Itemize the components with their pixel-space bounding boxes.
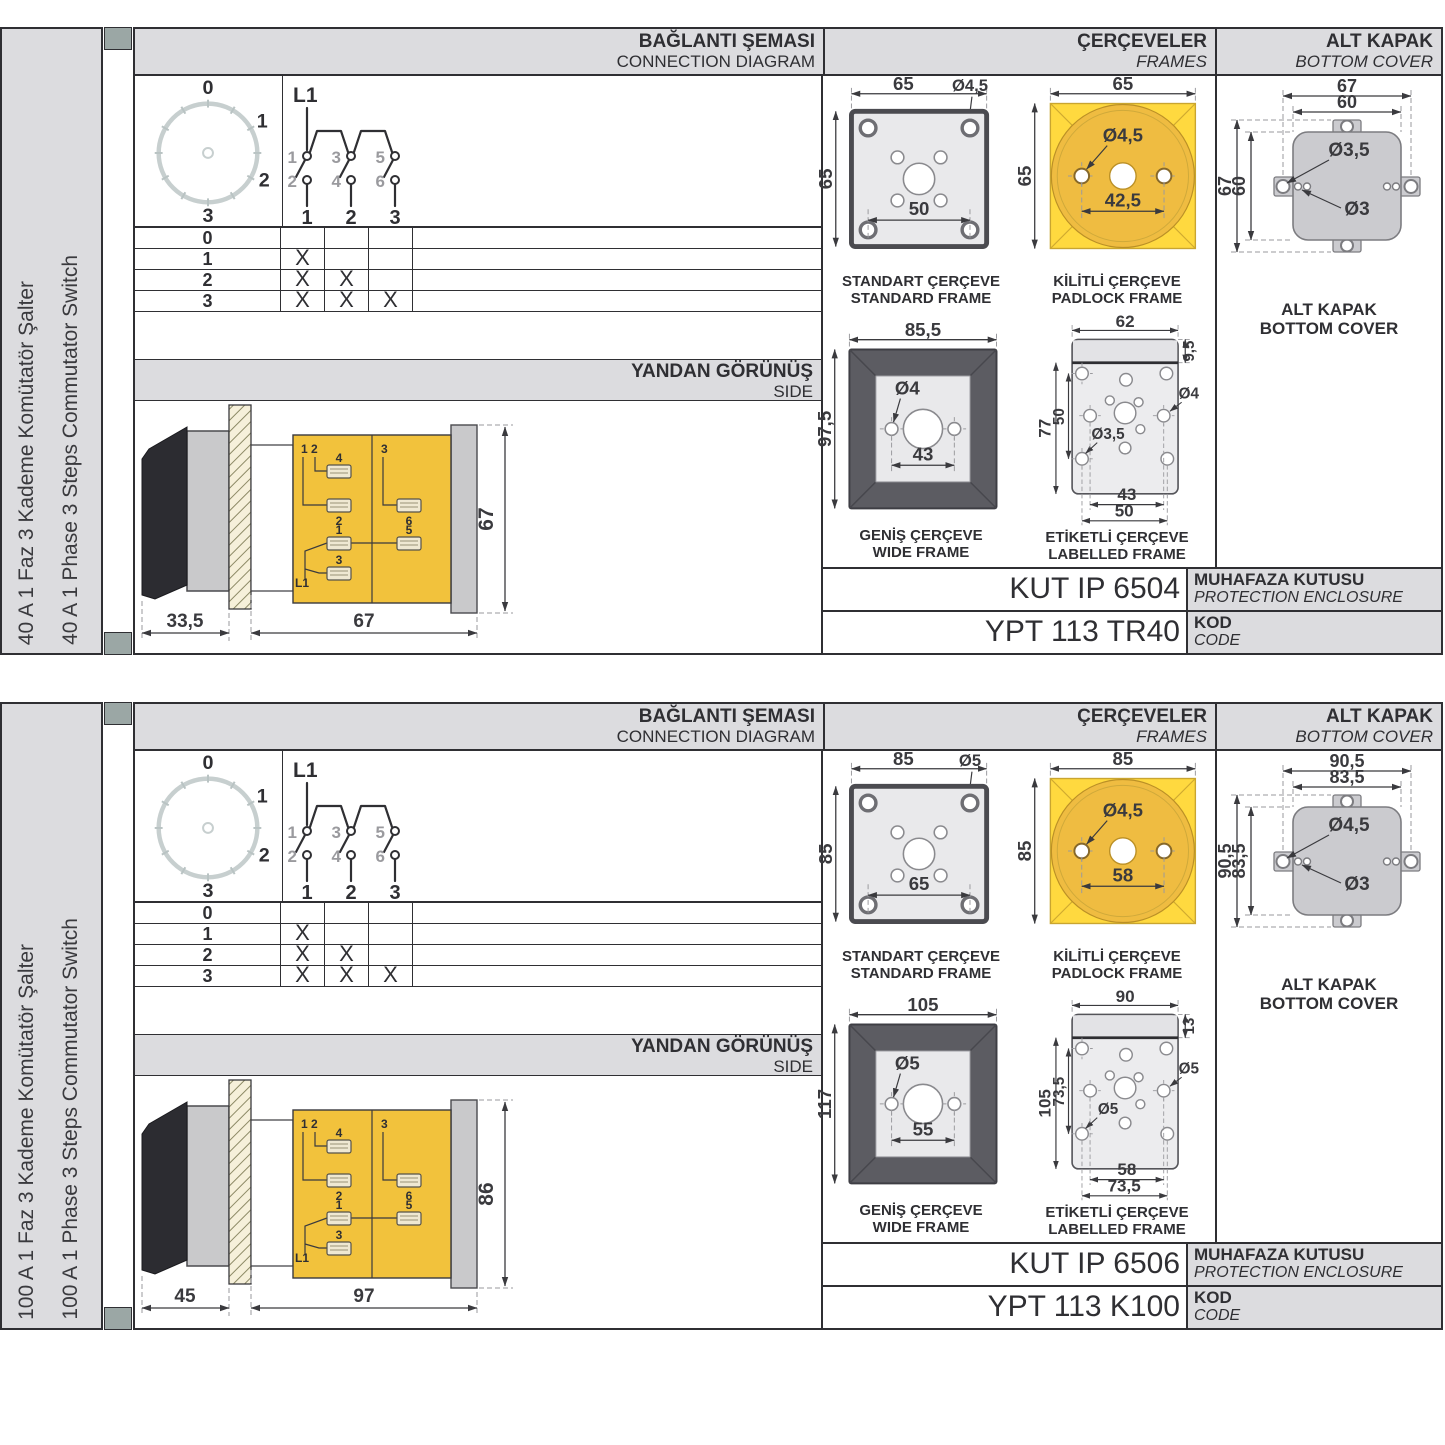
terminal-1-label: 1 <box>288 823 297 842</box>
panel-main-area: BAĞLANTI ŞEMASI CONNECTION DIAGRAM ÇERÇE… <box>133 702 1443 1330</box>
frames-and-cover: 65 Ø4,5 65 <box>823 76 1441 567</box>
dial-position-3: 3 <box>203 205 214 227</box>
product-title-english: 40 A 1 Phase 3 Steps Commutator Switch <box>60 255 81 645</box>
terminal-1-tag: 1 <box>336 523 343 537</box>
code-label-en: CODE <box>1194 1307 1441 1325</box>
dim-hole-diameter: Ø4,5 <box>1103 800 1143 821</box>
code-label: KOD CODE <box>1186 612 1441 653</box>
dim-handle-depth: 45 <box>174 1286 196 1307</box>
table-filler-cell <box>413 270 821 290</box>
header-frames-tr: ÇERÇEVELER <box>825 31 1207 52</box>
position-label-cell: 2 <box>135 270 281 290</box>
padlock-frame-caption: KİLİTLİ ÇERÇEVE PADLOCK FRAME <box>1019 948 1215 982</box>
caption-tr: GENİŞ ÇERÇEVE <box>823 527 1019 544</box>
corner-terminals-12-label: 1 2 <box>301 442 318 456</box>
dim-body-height: 86 <box>475 1182 498 1205</box>
table-filler-cell <box>413 945 821 965</box>
table-filler-cell <box>413 966 821 986</box>
terminal-4-label: 4 <box>332 172 342 191</box>
product-code: YPT 113 K100 <box>823 1287 1186 1328</box>
labelled-frame-drawing: 90 13 105 73,5 <box>1029 991 1205 1203</box>
position-label-cell: 3 <box>135 966 281 986</box>
table-filler-cell <box>413 228 821 248</box>
phase-label: L1 <box>293 84 318 107</box>
product-code-row: YPT 113 K100 KOD CODE <box>823 1285 1441 1328</box>
terminal-2-label: 2 <box>288 847 297 866</box>
header-frames: ÇERÇEVELER FRAMES <box>823 704 1215 749</box>
padlock-frame-drawing: 85 85 <box>1019 755 1215 947</box>
dim-hole-b-diameter: Ø5 <box>1098 1101 1119 1118</box>
dial-position-1: 1 <box>257 110 268 132</box>
caption-en: STANDARD FRAME <box>823 290 1019 307</box>
enclosure-label: MUHAFAZA KUTUSU PROTECTION ENCLOSURE <box>1186 1244 1441 1285</box>
shaft-housing <box>251 1120 293 1266</box>
panel-content: 0 1 2 3 L1 <box>135 76 1441 653</box>
terminal-5-tag: 5 <box>406 1198 413 1212</box>
dim-frame-height: 85 <box>1014 841 1035 862</box>
enclosure-row: KUT IP 6506 MUHAFAZA KUTUSU PROTECTION E… <box>823 1242 1441 1285</box>
dim-label-band: 13 <box>1181 1018 1198 1035</box>
dial-position-0: 0 <box>203 77 214 99</box>
wide-frame-figure: 105 117 <box>823 999 1019 1236</box>
position-mark-cell <box>325 903 369 923</box>
switch-bezel <box>187 1106 229 1266</box>
caption-en: PADLOCK FRAME <box>1019 965 1215 982</box>
padlock-frame-caption: KİLİTLİ ÇERÇEVE PADLOCK FRAME <box>1019 273 1215 307</box>
dim-hole-diameter: Ø5 <box>959 751 981 770</box>
header-frames-en: FRAMES <box>825 727 1207 746</box>
labelled-frame-figure: 90 13 105 73,5 <box>1019 991 1215 1238</box>
position-mark-cell: X <box>325 966 369 986</box>
table-row: 0 <box>135 903 821 924</box>
pole-schematic-cell: L1 1 2 3 <box>283 751 823 901</box>
dim-cover-inner-width: 83,5 <box>1329 767 1364 787</box>
caption-en: LABELLED FRAME <box>1019 1221 1215 1238</box>
product-code: YPT 113 TR40 <box>823 612 1186 653</box>
header-frames-tr: ÇERÇEVELER <box>825 706 1207 727</box>
section-header-row: BAĞLANTI ŞEMASI CONNECTION DIAGRAM ÇERÇE… <box>135 704 1441 751</box>
dim-frame-height: 65 <box>1014 166 1035 187</box>
dim-frame-width: 65 <box>893 73 914 94</box>
caption-en: WIDE FRAME <box>823 544 1019 561</box>
panel-content: 0 1 2 3 L1 <box>135 751 1441 1328</box>
position-mark-cell <box>369 903 413 923</box>
position-mark-cell <box>369 249 413 269</box>
standard-frame-figure: 85 Ø5 85 <box>823 755 1019 982</box>
corner-terminal-3-label: 3 <box>381 442 388 456</box>
bottom-cover-caption: ALT KAPAK BOTTOM COVER <box>1217 300 1441 338</box>
padlock-frame-figure: 65 65 <box>1019 80 1215 307</box>
dim-hole-diameter: Ø4,5 <box>1103 125 1143 146</box>
dim-hole-diameter: Ø5 <box>895 1053 920 1074</box>
caption-tr: ALT KAPAK <box>1217 300 1441 319</box>
side-view-cell: 1 2 3 4 2 1 3 6 5 L1 33,5 <box>135 401 823 651</box>
accent-square-bottom <box>104 1307 132 1330</box>
section-header-row: BAĞLANTI ŞEMASI CONNECTION DIAGRAM ÇERÇE… <box>135 29 1441 76</box>
dim-frame-width: 85,5 <box>905 319 941 340</box>
dim-frame-height: 117 <box>814 1089 835 1119</box>
header-bottom-cover: ALT KAPAK BOTTOM COVER <box>1215 29 1441 74</box>
side-view-title-tr: YANDAN GÖRÜNÜŞ <box>135 361 813 382</box>
dim-cover-hole-a: Ø4,5 <box>1328 815 1370 836</box>
dim-frame-width: 85 <box>1113 748 1134 769</box>
dim-frame-height: 97,5 <box>814 411 835 447</box>
enclosure-row: KUT IP 6504 MUHAFAZA KUTUSU PROTECTION E… <box>823 567 1441 610</box>
dial-position-0: 0 <box>203 752 214 774</box>
product-title-sidebar: 100 A 1 Faz 3 Kademe Komütatör Şalter 10… <box>0 702 103 1330</box>
dim-frame-width: 85 <box>893 748 914 769</box>
position-mark-cell: X <box>369 966 413 986</box>
dim-hole-pitch: 42,5 <box>1105 189 1141 210</box>
connection-diagram-column: 0 1 2 3 L1 <box>135 751 823 1328</box>
table-filler-cell <box>413 924 821 944</box>
dial-position-3: 3 <box>203 880 214 902</box>
caption-en: WIDE FRAME <box>823 1219 1019 1236</box>
dim-cover-inner-height: 83,5 <box>1229 843 1249 878</box>
enclosure-label: MUHAFAZA KUTUSU PROTECTION ENCLOSURE <box>1186 569 1441 610</box>
switch-handle <box>142 1102 187 1274</box>
phase-tag: L1 <box>295 1251 309 1265</box>
caption-tr: KİLİTLİ ÇERÇEVE <box>1019 948 1215 965</box>
dim-cover-hole-b: Ø3 <box>1344 199 1369 220</box>
dim-vertical-pitch: 50 <box>1051 408 1068 425</box>
dim-hole-pitch: 58 <box>1113 864 1134 885</box>
position-label-cell: 1 <box>135 924 281 944</box>
side-view-band: YANDAN GÖRÜNÜŞ SIDE <box>135 1034 821 1076</box>
header-frames-en: FRAMES <box>825 52 1207 71</box>
enclosure-label-en: PROTECTION ENCLOSURE <box>1194 589 1441 607</box>
accent-square-bottom <box>104 632 132 655</box>
caption-en: LABELLED FRAME <box>1019 546 1215 563</box>
switch-bezel <box>187 431 229 591</box>
product-title-sidebar: 40 A 1 Faz 3 Kademe Komütatör Şalter 40 … <box>0 27 103 655</box>
table-row: 1 X <box>135 924 821 945</box>
labelled-frame-caption: ETİKETLİ ÇERÇEVE LABELLED FRAME <box>1019 1204 1215 1238</box>
switch-dial-cell: 0 1 2 3 <box>135 751 283 901</box>
product-title-english: 100 A 1 Phase 3 Steps Commutator Switch <box>60 918 81 1320</box>
position-mark-cell: X <box>325 291 369 311</box>
header-connection-diagram: BAĞLANTI ŞEMASI CONNECTION DIAGRAM <box>135 29 823 74</box>
pole-schematic-drawing: L1 1 2 3 <box>283 76 823 226</box>
enclosure-label-tr: MUHAFAZA KUTUSU <box>1194 570 1441 589</box>
code-label: KOD CODE <box>1186 1287 1441 1328</box>
terminal-6-label: 6 <box>376 172 385 191</box>
labelled-frame-figure: 62 9,5 77 50 <box>1019 316 1215 563</box>
contact-position-table: 0 1 X 2 X <box>135 226 821 312</box>
terminal-5-label: 5 <box>376 148 385 167</box>
bottom-cover-caption: ALT KAPAK BOTTOM COVER <box>1217 975 1441 1013</box>
wide-frame-caption: GENİŞ ÇERÇEVE WIDE FRAME <box>823 1202 1019 1236</box>
accent-square-top <box>104 27 132 50</box>
dim-frame-height: 85 <box>815 844 836 865</box>
header-cover-tr: ALT KAPAK <box>1217 706 1433 727</box>
dim-hole-diameter: Ø4 <box>895 378 920 399</box>
position-mark-cell: X <box>369 291 413 311</box>
position-mark-cell: X <box>281 291 325 311</box>
dim-hole-pitch: 55 <box>913 1118 934 1139</box>
frames-column: 65 Ø4,5 65 <box>823 76 1215 567</box>
table-row: 3 X X X <box>135 291 821 312</box>
header-cover-en: BOTTOM COVER <box>1217 52 1433 71</box>
dim-frame-width: 90 <box>1116 987 1135 1006</box>
caption-tr: STANDART ÇERÇEVE <box>823 273 1019 290</box>
mounting-panel-hatched <box>229 405 251 609</box>
dim-frame-width: 105 <box>907 994 938 1015</box>
position-mark-cell <box>325 228 369 248</box>
phase-tag: L1 <box>295 576 309 590</box>
panel-main-area: BAĞLANTI ŞEMASI CONNECTION DIAGRAM ÇERÇE… <box>133 27 1443 655</box>
caption-tr: ETİKETLİ ÇERÇEVE <box>1019 529 1215 546</box>
pole-schematic-cell: L1 1 2 3 <box>283 76 823 226</box>
terminal-3-tag: 3 <box>336 553 343 567</box>
switch-position-dial: 0 1 2 3 <box>135 76 283 226</box>
terminal-2-label: 2 <box>288 172 297 191</box>
enclosure-code: KUT IP 6506 <box>823 1244 1186 1285</box>
dim-body-height: 67 <box>475 507 498 530</box>
dim-cover-hole-a: Ø3,5 <box>1328 140 1370 161</box>
dial-position-1: 1 <box>257 785 268 807</box>
terminal-6-label: 6 <box>376 847 385 866</box>
dim-body-depth: 67 <box>353 611 374 632</box>
header-bottom-cover: ALT KAPAK BOTTOM COVER <box>1215 704 1441 749</box>
rear-plate <box>451 425 477 613</box>
table-row: 1 X <box>135 249 821 270</box>
shaft-housing <box>251 445 293 591</box>
right-region: 65 Ø4,5 65 <box>823 76 1441 653</box>
terminal-3-label: 3 <box>332 148 341 167</box>
accent-square-top <box>104 702 132 725</box>
bottom-cover-column: 67 60 67 60 <box>1215 76 1441 567</box>
dim-frame-width: 65 <box>1113 73 1134 94</box>
pole-schematic-drawing: L1 1 2 3 <box>283 751 823 901</box>
dim-hole-pitch: 43 <box>913 443 934 464</box>
side-view-drawing: 1 2 3 4 2 1 3 6 5 L1 45 <box>135 1076 823 1326</box>
frames-column: 85 Ø5 85 <box>823 751 1215 1242</box>
header-frames: ÇERÇEVELER FRAMES <box>823 29 1215 74</box>
position-label-cell: 3 <box>135 291 281 311</box>
standard-frame-drawing: 85 Ø5 85 <box>823 755 1019 947</box>
caption-tr: ALT KAPAK <box>1217 975 1441 994</box>
header-cover-en: BOTTOM COVER <box>1217 727 1433 746</box>
enclosure-label-tr: MUHAFAZA KUTUSU <box>1194 1245 1441 1264</box>
labelled-frame-drawing: 62 9,5 77 50 <box>1029 316 1205 528</box>
terminal-1-tag: 1 <box>336 1198 343 1212</box>
product-title-turkish: 100 A 1 Faz 3 Kademe Komütatör Şalter <box>16 944 37 1320</box>
code-label-tr: KOD <box>1194 613 1441 632</box>
dim-label-band: 9,5 <box>1181 340 1198 362</box>
dim-pitch-2: 50 <box>1115 501 1134 520</box>
table-filler-cell <box>413 903 821 923</box>
phase-label: L1 <box>293 759 318 782</box>
dim-cover-inner-height: 60 <box>1229 176 1249 196</box>
table-row: 3 X X X <box>135 966 821 987</box>
padlock-frame-figure: 85 85 <box>1019 755 1215 982</box>
rear-plate <box>451 1100 477 1288</box>
product-panel-p0: 40 A 1 Faz 3 Kademe Komütatör Şalter 40 … <box>0 27 1445 655</box>
dim-hole-pitch: 50 <box>909 198 930 219</box>
dial-position-2: 2 <box>259 170 270 192</box>
position-label-cell: 2 <box>135 945 281 965</box>
dim-hole-pitch: 65 <box>909 873 930 894</box>
standard-frame-caption: STANDART ÇERÇEVE STANDARD FRAME <box>823 948 1019 982</box>
header-connection-tr: BAĞLANTI ŞEMASI <box>135 31 815 52</box>
product-panel-p1: 100 A 1 Faz 3 Kademe Komütatör Şalter 10… <box>0 702 1445 1330</box>
table-filler-cell <box>413 291 821 311</box>
table-row: 0 <box>135 228 821 249</box>
terminal-4-label: 4 <box>332 847 342 866</box>
labelled-frame-caption: ETİKETLİ ÇERÇEVE LABELLED FRAME <box>1019 529 1215 563</box>
dim-hole-a-diameter: Ø4 <box>1179 386 1200 403</box>
side-view-title-en: SIDE <box>135 1057 813 1076</box>
caption-en: STANDARD FRAME <box>823 965 1019 982</box>
standard-frame-drawing: 65 Ø4,5 65 <box>823 80 1019 272</box>
dim-vertical-pitch: 73,5 <box>1051 1076 1068 1106</box>
dim-hole-diameter: Ø4,5 <box>952 76 988 95</box>
terminal-4-tag: 4 <box>336 451 343 465</box>
terminal-3-label: 3 <box>332 823 341 842</box>
wide-frame-caption: GENİŞ ÇERÇEVE WIDE FRAME <box>823 527 1019 561</box>
switch-dial-cell: 0 1 2 3 <box>135 76 283 226</box>
dim-frame-height: 65 <box>815 169 836 190</box>
caption-en: BOTTOM COVER <box>1217 319 1441 338</box>
caption-tr: GENİŞ ÇERÇEVE <box>823 1202 1019 1219</box>
product-title-turkish: 40 A 1 Faz 3 Kademe Komütatör Şalter <box>16 281 37 645</box>
wide-frame-drawing: 105 117 <box>823 999 1019 1201</box>
bottom-cover-drawing: 67 60 67 60 <box>1217 84 1445 296</box>
position-mark-cell: X <box>281 966 325 986</box>
caption-tr: ETİKETLİ ÇERÇEVE <box>1019 1204 1215 1221</box>
position-label-cell: 0 <box>135 903 281 923</box>
dim-cover-inner-width: 60 <box>1337 92 1357 112</box>
table-row: 2 X X <box>135 270 821 291</box>
table-filler-cell <box>413 249 821 269</box>
header-connection-tr: BAĞLANTI ŞEMASI <box>135 706 815 727</box>
enclosure-label-en: PROTECTION ENCLOSURE <box>1194 1264 1441 1282</box>
dim-hole-b-diameter: Ø3,5 <box>1091 426 1125 443</box>
dim-cover-hole-b: Ø3 <box>1344 874 1369 895</box>
side-view-cell: 1 2 3 4 2 1 3 6 5 L1 45 <box>135 1076 823 1326</box>
standard-frame-caption: STANDART ÇERÇEVE STANDARD FRAME <box>823 273 1019 307</box>
caption-en: BOTTOM COVER <box>1217 994 1441 1013</box>
terminal-5-tag: 5 <box>406 523 413 537</box>
code-label-en: CODE <box>1194 632 1441 650</box>
dim-pitch-2: 73,5 <box>1108 1176 1141 1195</box>
side-view-band: YANDAN GÖRÜNÜŞ SIDE <box>135 359 821 401</box>
wide-frame-drawing: 85,5 97,5 <box>823 324 1019 526</box>
standard-frame-figure: 65 Ø4,5 65 <box>823 80 1019 307</box>
terminal-3-tag: 3 <box>336 1228 343 1242</box>
corner-terminals-12-label: 1 2 <box>301 1117 318 1131</box>
switch-handle <box>142 427 187 599</box>
dim-handle-depth: 33,5 <box>167 611 204 632</box>
padlock-frame-drawing: 65 65 <box>1019 80 1215 272</box>
position-mark-cell <box>369 924 413 944</box>
position-label-cell: 1 <box>135 249 281 269</box>
wide-frame-figure: 85,5 97,5 <box>823 324 1019 561</box>
code-label-tr: KOD <box>1194 1288 1441 1307</box>
terminal-1-label: 1 <box>288 148 297 167</box>
corner-terminal-3-label: 3 <box>381 1117 388 1131</box>
connection-diagram-column: 0 1 2 3 L1 <box>135 76 823 653</box>
header-connection-diagram: BAĞLANTI ŞEMASI CONNECTION DIAGRAM <box>135 704 823 749</box>
bottom-cover-drawing: 90,5 83,5 90,5 83,5 <box>1217 759 1445 971</box>
switch-position-dial: 0 1 2 3 <box>135 751 283 901</box>
table-row: 2 X X <box>135 945 821 966</box>
side-view-drawing: 1 2 3 4 2 1 3 6 5 L1 33,5 <box>135 401 823 651</box>
contact-position-table: 0 1 X 2 X <box>135 901 821 987</box>
caption-en: PADLOCK FRAME <box>1019 290 1215 307</box>
side-view-title-tr: YANDAN GÖRÜNÜŞ <box>135 1036 813 1057</box>
side-view-title-en: SIDE <box>135 382 813 401</box>
header-cover-tr: ALT KAPAK <box>1217 31 1433 52</box>
dim-body-depth: 97 <box>353 1286 374 1307</box>
header-connection-en: CONNECTION DIAGRAM <box>135 52 815 71</box>
product-code-row: YPT 113 TR40 KOD CODE <box>823 610 1441 653</box>
dim-frame-width: 62 <box>1116 312 1135 331</box>
right-region: 85 Ø5 85 <box>823 751 1441 1328</box>
header-connection-en: CONNECTION DIAGRAM <box>135 727 815 746</box>
terminal-4-tag: 4 <box>336 1126 343 1140</box>
caption-tr: KİLİTLİ ÇERÇEVE <box>1019 273 1215 290</box>
position-mark-cell <box>369 228 413 248</box>
enclosure-code: KUT IP 6504 <box>823 569 1186 610</box>
mounting-panel-hatched <box>229 1080 251 1284</box>
bottom-cover-column: 90,5 83,5 90,5 83,5 <box>1215 751 1441 1242</box>
caption-tr: STANDART ÇERÇEVE <box>823 948 1019 965</box>
position-label-cell: 0 <box>135 228 281 248</box>
terminal-5-label: 5 <box>376 823 385 842</box>
dial-position-2: 2 <box>259 845 270 867</box>
dim-hole-a-diameter: Ø5 <box>1179 1061 1200 1078</box>
frames-and-cover: 85 Ø5 85 <box>823 751 1441 1242</box>
